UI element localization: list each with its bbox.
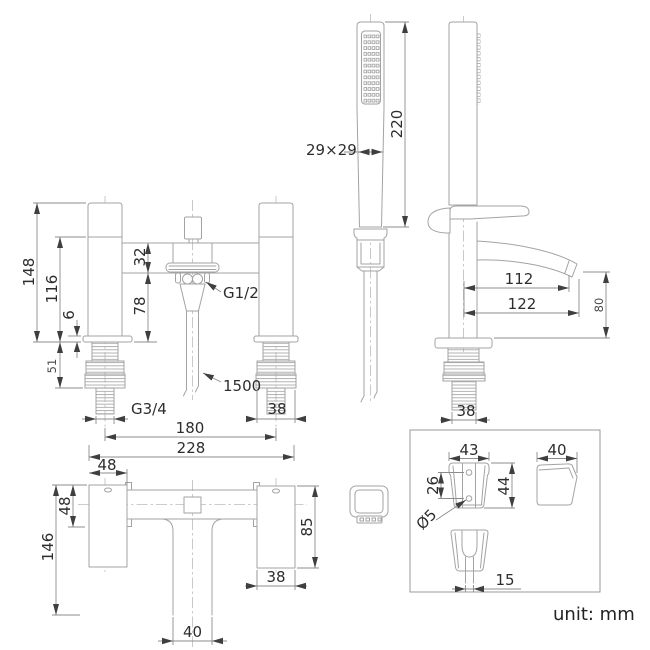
detail-box-border — [410, 430, 600, 592]
dim-handle-depth: 48 — [56, 496, 74, 515]
shank-nut — [444, 362, 484, 374]
dim-spout-height: 80 — [592, 298, 606, 313]
dim-spout-clearance: 78 — [131, 296, 149, 315]
view-handset-top — [350, 486, 388, 523]
view-top: 48 48 146 85 38 40 — [39, 456, 319, 648]
handset-head-outline — [350, 486, 388, 517]
outlet-cone — [180, 284, 205, 311]
outlet-nut-right — [193, 274, 203, 284]
dim-body-depth: 85 — [298, 517, 316, 536]
nozzle-profile — [477, 34, 480, 105]
left-shank-thread — [92, 342, 118, 361]
right-shank-thread — [263, 342, 289, 361]
dim-outlet-thread: G1/2 — [223, 284, 259, 302]
technical-drawing: 220 29×29 112 122 80 — [0, 0, 650, 650]
view-side: 112 122 80 38 — [428, 16, 610, 424]
dim-side-shank-width: 38 — [456, 402, 475, 420]
diverter-knob — [185, 217, 202, 239]
lever-knuckle — [428, 208, 450, 233]
spray-nozzles — [363, 34, 380, 104]
dim-overall-reach: 122 — [508, 295, 537, 313]
dim-inlet-thread: G3/4 — [131, 400, 167, 418]
view-bracket-details: 43 26 44 Ø5 40 15 — [410, 430, 600, 592]
dim-handset-length: 220 — [388, 110, 406, 139]
dim-bracket-clip-opening: 15 — [495, 571, 514, 589]
dim-bracket-width: 43 — [459, 441, 478, 459]
dim-body-height: 116 — [43, 275, 61, 304]
right-shank-nut — [257, 361, 295, 374]
dim-handle-width: 48 — [97, 456, 116, 474]
outlet-nut-left — [183, 274, 193, 284]
left-shank-washer — [85, 374, 125, 388]
left-shank-nut — [86, 361, 124, 374]
outlet-tab-right — [205, 273, 210, 283]
diverter-plate — [166, 263, 219, 272]
shower-hose — [184, 311, 199, 396]
hose-stub — [361, 271, 377, 402]
dim-spout-reach: 112 — [505, 270, 534, 288]
outlet-tab-left — [176, 273, 181, 283]
deck-plate-right — [254, 336, 298, 342]
left-pillar — [88, 203, 122, 336]
dim-body-width: 38 — [266, 568, 285, 586]
lever-handle — [450, 206, 529, 219]
dim-overall-height: 148 — [20, 258, 38, 287]
dim-spout-width: 40 — [183, 623, 202, 641]
right-shank-washer — [256, 374, 296, 388]
dim-top-offset: 32 — [131, 247, 149, 266]
dim-shank-length: 51 — [45, 359, 59, 374]
dim-bracket-height: 44 — [495, 476, 513, 495]
dim-inlet-centres: 180 — [176, 419, 205, 437]
shank-washer — [443, 374, 485, 381]
dim-overall-depth: 146 — [39, 533, 57, 562]
left-shank-tail — [96, 388, 114, 414]
dim-bracket-depth: 40 — [547, 441, 566, 459]
left-handle-block — [89, 485, 127, 567]
right-handle-block — [257, 486, 295, 568]
technical-drawing-sheet: 220 29×29 112 122 80 — [0, 0, 650, 650]
dim-overall-width: 228 — [177, 439, 206, 457]
dim-deck-thickness: 6 — [60, 310, 78, 320]
view-front: 148 116 6 51 32 78 G1/2 1500 G3/4 — [20, 196, 306, 461]
dim-front-shank-width: 38 — [267, 400, 286, 418]
diverter-knob-top — [184, 497, 201, 513]
dim-bracket-hole-spacing: 26 — [424, 476, 442, 495]
diverter-neck — [189, 239, 198, 243]
deck-plate-left — [83, 336, 132, 342]
handset-side — [449, 22, 477, 205]
shank-thread — [448, 348, 479, 362]
hose-nut — [354, 229, 387, 240]
deck-flange — [435, 338, 492, 348]
dim-handset-head-size: 29×29 — [306, 141, 357, 159]
unit-label: unit: mm — [553, 604, 635, 625]
right-pillar — [259, 203, 293, 336]
dim-hose-length: 1500 — [223, 377, 261, 395]
dim-bracket-hole-diameter: Ø5 — [413, 506, 441, 534]
view-handset-front: 220 29×29 — [306, 14, 409, 404]
